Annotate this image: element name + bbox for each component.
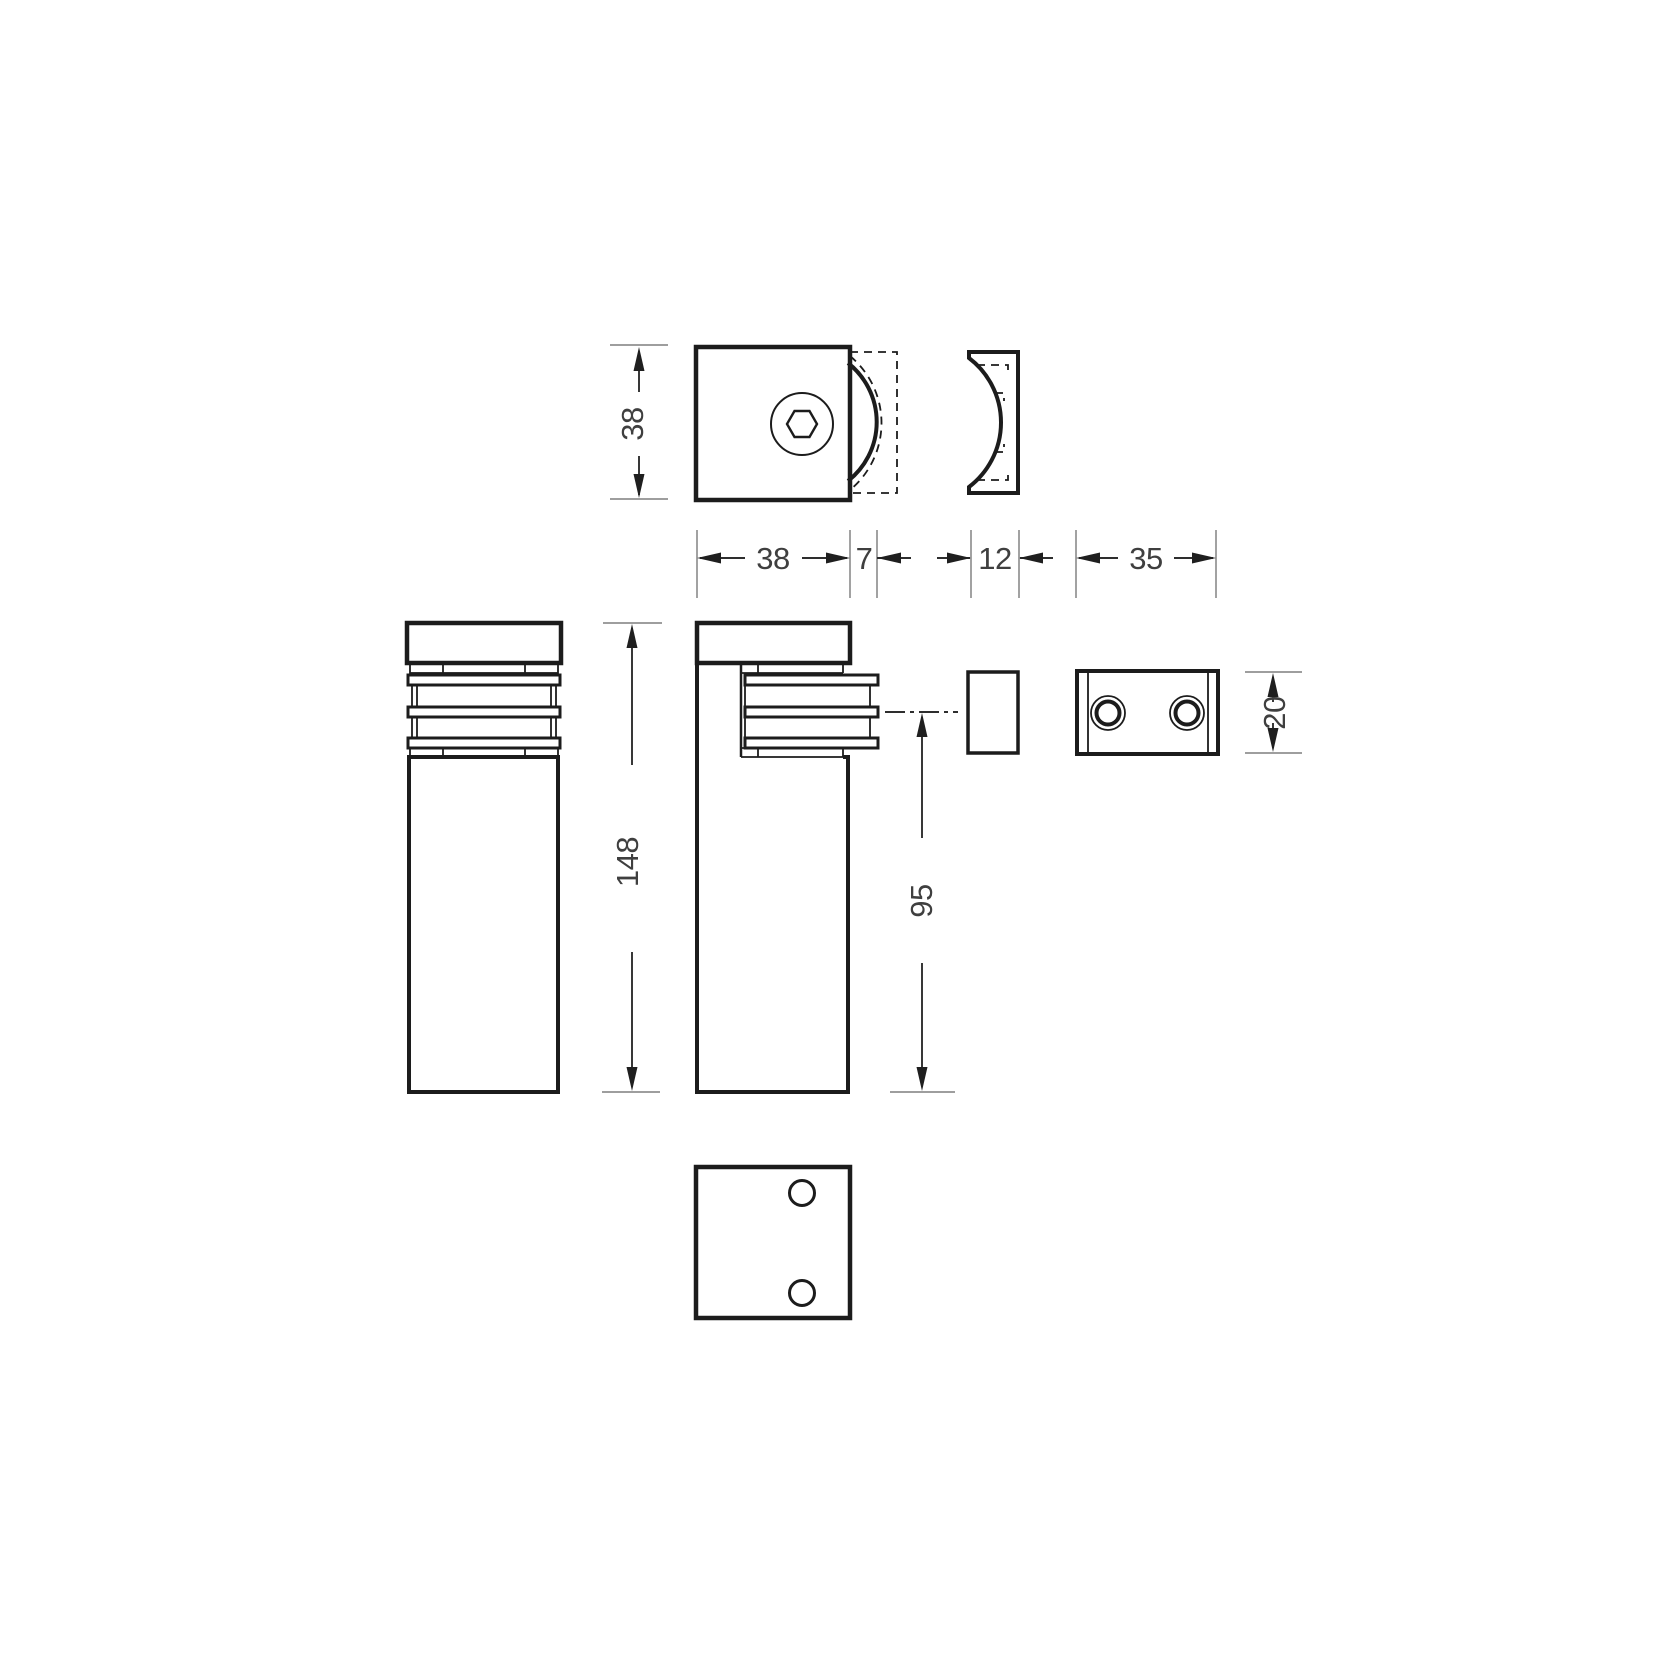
bottom-square-outline bbox=[696, 1167, 850, 1318]
arrowhead bbox=[877, 553, 901, 564]
screw-hole bbox=[1176, 702, 1199, 725]
technical-drawing-canvas: 38 38 7 12 bbox=[0, 0, 1676, 1676]
arrowhead bbox=[1268, 673, 1279, 697]
dim-overall-height: 148 bbox=[602, 623, 662, 1092]
dim-clamp-width: 38 bbox=[697, 541, 850, 576]
dim-row-horizontal: 38 7 12 35 bbox=[697, 530, 1216, 598]
arrowhead bbox=[627, 624, 638, 648]
arrowhead bbox=[917, 1067, 928, 1091]
top-view-spacer bbox=[969, 352, 1018, 493]
body-outline bbox=[409, 757, 558, 1092]
screw-hole bbox=[790, 1281, 815, 1306]
arrowhead bbox=[697, 553, 721, 564]
bottom-view bbox=[696, 1167, 850, 1318]
dim-label-square-height: 38 bbox=[615, 407, 650, 440]
louver-slat bbox=[745, 675, 878, 685]
dim-label-plate-height: 20 bbox=[1257, 696, 1292, 730]
arrowhead bbox=[1192, 553, 1216, 564]
dim-square-height: 38 bbox=[610, 345, 668, 499]
screw-hole bbox=[1097, 702, 1120, 725]
dim-label-spacer-thickness: 12 bbox=[978, 541, 1011, 576]
louver-slat bbox=[408, 738, 560, 748]
cap-outline bbox=[697, 623, 850, 663]
arrowhead bbox=[826, 553, 850, 564]
dim-label-overhang: 7 bbox=[856, 541, 873, 576]
arrowhead bbox=[627, 1067, 638, 1091]
top-view-clamp bbox=[696, 347, 897, 500]
screw-head-circle bbox=[771, 393, 833, 455]
spacer-rect-outline bbox=[968, 672, 1018, 753]
arrowhead bbox=[634, 474, 645, 498]
arrowhead bbox=[1076, 553, 1100, 564]
dim-label-plate-width: 35 bbox=[1129, 541, 1162, 576]
arrowhead bbox=[1268, 728, 1279, 752]
wall-plate-view bbox=[1077, 671, 1218, 754]
hex-socket-icon bbox=[787, 411, 817, 437]
cap-outline bbox=[407, 623, 561, 663]
dim-plate-height: 20 bbox=[1245, 672, 1302, 753]
louver-slat bbox=[408, 707, 560, 717]
dim-body-height: 95 bbox=[885, 712, 958, 1092]
louver-slat bbox=[408, 675, 560, 685]
spacer-profile-outline bbox=[969, 352, 1018, 493]
spacer-side-view bbox=[968, 672, 1018, 753]
dim-label-clamp-width: 38 bbox=[756, 541, 789, 576]
body-outline bbox=[697, 663, 848, 1092]
clamp-square-outline bbox=[696, 347, 850, 500]
arrowhead bbox=[947, 553, 971, 564]
dim-plate-width: 35 bbox=[1076, 541, 1216, 576]
arrowhead bbox=[634, 347, 645, 371]
dim-label-body-height: 95 bbox=[904, 884, 939, 917]
dim-label-overall-height: 148 bbox=[610, 837, 645, 887]
louver-slat bbox=[745, 707, 878, 717]
louver-slat bbox=[745, 738, 878, 748]
arrowhead bbox=[917, 713, 928, 737]
dim-overhang: 7 bbox=[856, 541, 911, 576]
screw-hole bbox=[790, 1181, 815, 1206]
side-view bbox=[697, 623, 878, 1092]
dim-spacer-thickness: 12 bbox=[937, 541, 1053, 576]
arrowhead bbox=[1019, 553, 1043, 564]
front-view bbox=[407, 623, 561, 1092]
